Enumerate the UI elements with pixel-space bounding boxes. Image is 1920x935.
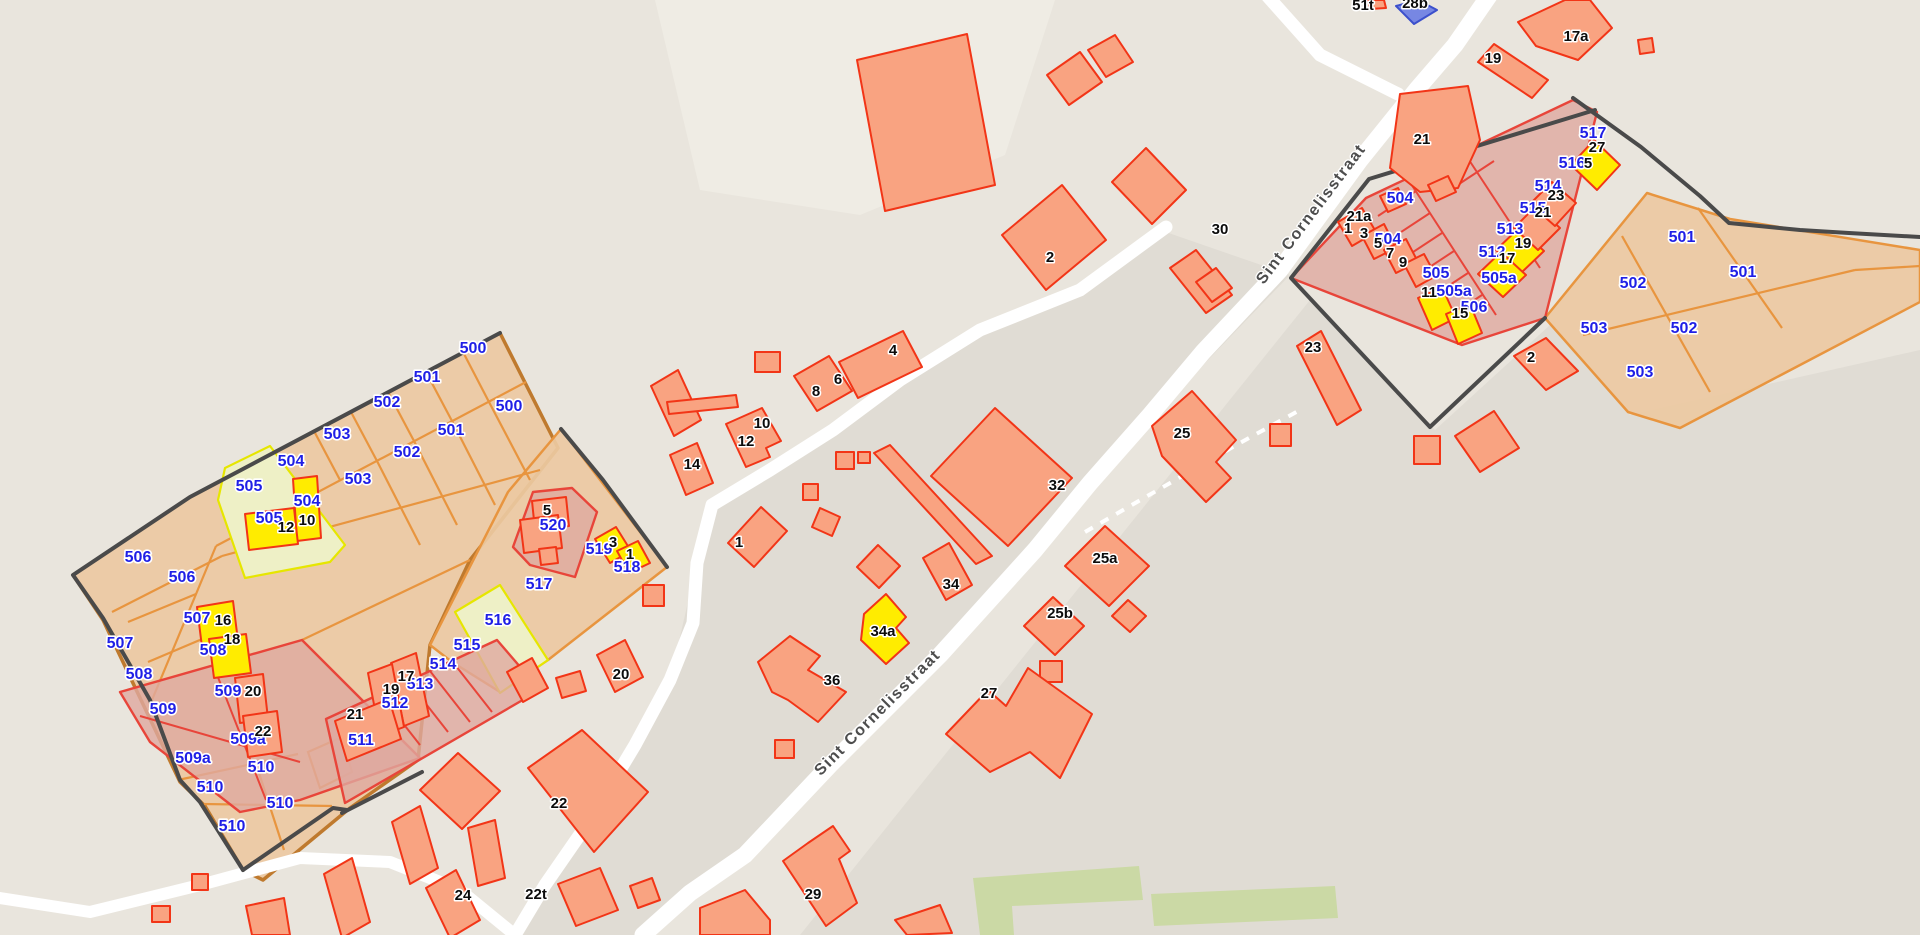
parcel-number-label: 510: [248, 759, 275, 776]
house-number-label: 51t: [1352, 0, 1374, 14]
parcel-number-label: 502: [394, 444, 421, 461]
parcel-number-label: 517: [526, 576, 553, 593]
house-number-label: 2: [1046, 249, 1054, 266]
house-number-label: 9: [1399, 254, 1407, 271]
building[interactable]: [755, 352, 780, 372]
house-number-label: 20: [245, 683, 262, 700]
parcel-number-label: 506: [125, 549, 152, 566]
house-number-label: 36: [824, 672, 841, 689]
parcel-number-label: 511: [348, 732, 374, 749]
house-number-label: 34a: [870, 623, 896, 640]
parcel-number-label: 500: [496, 398, 523, 415]
house-number-label: 21: [1414, 131, 1431, 148]
house-number-label: 10: [754, 415, 771, 432]
parcel-number-label: 501: [438, 422, 465, 439]
house-number-label: 23: [1305, 339, 1322, 356]
parcel-number-label: 501: [1669, 229, 1696, 246]
house-number-label: 3: [609, 534, 617, 551]
parcel-number-label: 509: [150, 701, 177, 718]
house-number-label: 25: [1174, 425, 1191, 442]
house-number-label: 3: [1360, 225, 1368, 242]
house-number-label: 18: [224, 631, 241, 648]
house-number-label: 20: [613, 666, 630, 683]
house-number-label: 2: [1527, 349, 1535, 366]
house-number-label: 34: [943, 576, 960, 593]
house-number-label: 8: [812, 383, 820, 400]
parcel-number-label: 516: [1559, 155, 1586, 172]
parcel-number-label: 505a: [1481, 270, 1517, 287]
parcel-number-label: 503: [324, 426, 351, 443]
parcel-number-label: 507: [184, 610, 211, 627]
house-number-label: 5: [1584, 155, 1592, 172]
house-number-label: 22: [551, 795, 568, 812]
house-number-label: 25b: [1047, 605, 1073, 622]
parcel-number-label: 506: [169, 569, 196, 586]
house-number-label: 17: [398, 668, 415, 685]
house-number-label: 17: [1499, 250, 1516, 267]
parcel-number-label: 503: [345, 471, 372, 488]
house-number-label: 19: [383, 681, 400, 698]
parcel-number-label: 503: [1627, 364, 1654, 381]
house-number-label: 32: [1049, 477, 1066, 494]
parcel-number-label: 510: [267, 795, 294, 812]
house-number-label: 21: [1535, 204, 1552, 221]
building[interactable]: [1270, 424, 1291, 446]
house-number-label: 22: [255, 723, 272, 740]
parcel-number-label: 508: [126, 666, 153, 683]
parcel-number-label: 509: [215, 683, 242, 700]
house-number-label: 27: [981, 685, 998, 702]
parcel-number-label: 500: [460, 340, 487, 357]
house-number-label: 5: [1374, 235, 1382, 252]
building[interactable]: [539, 547, 558, 565]
house-number-label: 29: [805, 886, 822, 903]
house-number-label: 23: [1548, 187, 1565, 204]
house-number-label: 19: [1485, 50, 1502, 67]
house-number-label: 19: [1515, 235, 1532, 252]
parcel-number-label: 504: [294, 493, 321, 510]
parcel-number-label: 516: [485, 612, 512, 629]
house-number-label: 4: [889, 342, 898, 359]
parcel-number-label: 504: [1387, 190, 1414, 207]
parcel-number-label: 504: [278, 453, 305, 470]
house-number-label: 1: [1344, 220, 1352, 237]
house-number-label: 6: [834, 371, 842, 388]
parcel-number-label: 510: [219, 818, 246, 835]
map-viewport[interactable]: 5005015025035045055045055005015025035065…: [0, 0, 1920, 935]
house-number-label: 30: [1212, 221, 1229, 238]
house-number-label: 15: [1452, 305, 1469, 322]
parcel-number-label: 508: [200, 642, 227, 659]
parcel-number-label: 502: [1620, 275, 1647, 292]
building[interactable]: [192, 874, 208, 890]
parcel-number-label: 507: [107, 635, 134, 652]
parcel-number-label: 502: [374, 394, 401, 411]
parcel-number-label: 502: [1671, 320, 1698, 337]
parcel-number-label: 520: [540, 517, 567, 534]
house-number-label: 16: [215, 612, 232, 629]
building[interactable]: [836, 452, 854, 469]
building[interactable]: [643, 585, 664, 606]
parcel-number-label: 501: [414, 369, 441, 386]
parcel-number-label: 505: [236, 478, 263, 495]
house-number-label: 1: [626, 546, 634, 563]
building[interactable]: [1638, 38, 1654, 54]
map-canvas[interactable]: 5005015025035045055045055005015025035065…: [0, 0, 1920, 935]
building[interactable]: [1414, 436, 1440, 464]
building[interactable]: [152, 906, 170, 922]
house-number-label: 24: [455, 887, 472, 904]
house-number-label: 1: [735, 534, 743, 551]
parcel-number-label: 510: [197, 779, 224, 796]
parcel-number-label: 501: [1730, 264, 1757, 281]
house-number-label: 27: [1589, 139, 1606, 156]
house-number-label: 22t: [525, 886, 547, 903]
house-number-label: 12: [738, 433, 755, 450]
parcel-number-label: 509a: [175, 750, 211, 767]
parcel-number-label: 503: [1581, 320, 1608, 337]
parcel-number-label: 505a: [1436, 283, 1472, 300]
building[interactable]: [775, 740, 794, 758]
building[interactable]: [858, 452, 870, 463]
house-number-label: 21: [347, 706, 364, 723]
building[interactable]: [803, 484, 818, 500]
house-number-label: 25a: [1092, 550, 1118, 567]
house-number-label: 7: [1386, 245, 1394, 262]
house-number-label: 5: [543, 502, 551, 519]
house-number-label: 11: [1421, 284, 1437, 301]
parcel-number-label: 515: [454, 637, 481, 654]
parcel-number-label: 505: [1423, 265, 1450, 282]
house-number-label: 14: [684, 456, 701, 473]
house-number-label: 17a: [1563, 28, 1589, 45]
house-number-label: 28b: [1402, 0, 1428, 12]
house-number-label: 12: [278, 519, 295, 536]
parcel-number-label: 514: [430, 656, 457, 673]
house-number-label: 10: [299, 512, 316, 529]
